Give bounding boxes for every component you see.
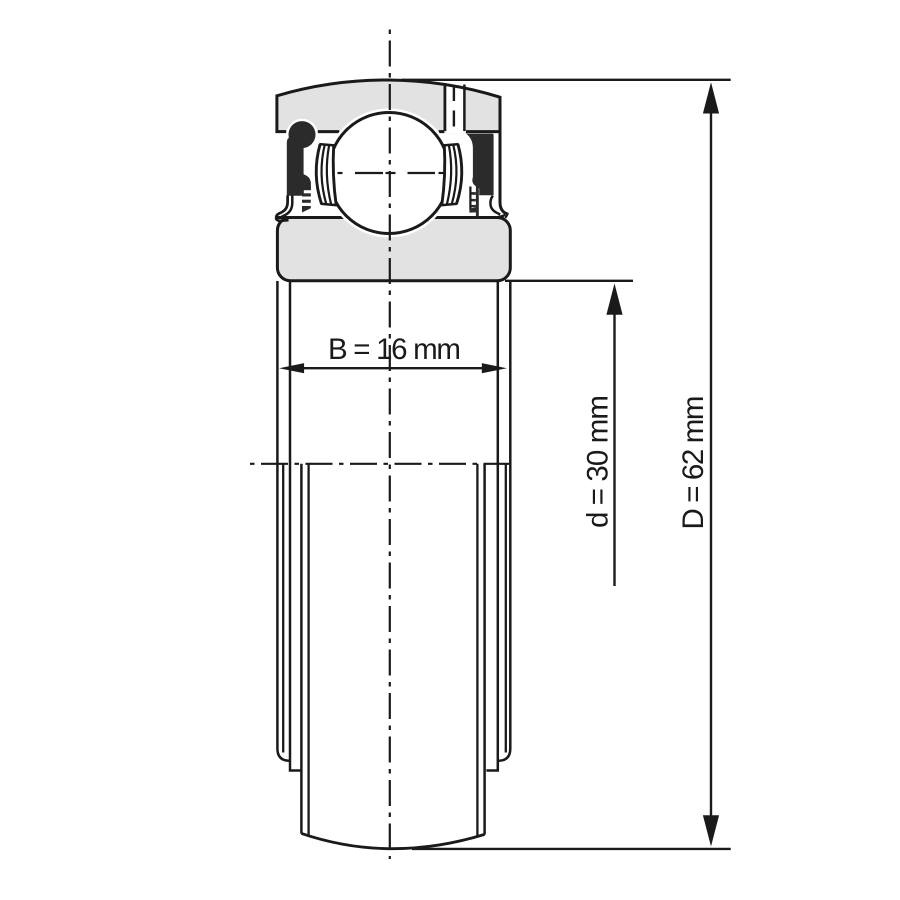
svg-text:B = 16 mm: B = 16 mm <box>328 333 461 366</box>
svg-text:d = 30 mm: d = 30 mm <box>582 395 615 528</box>
svg-text:D = 62 mm: D = 62 mm <box>677 396 710 530</box>
